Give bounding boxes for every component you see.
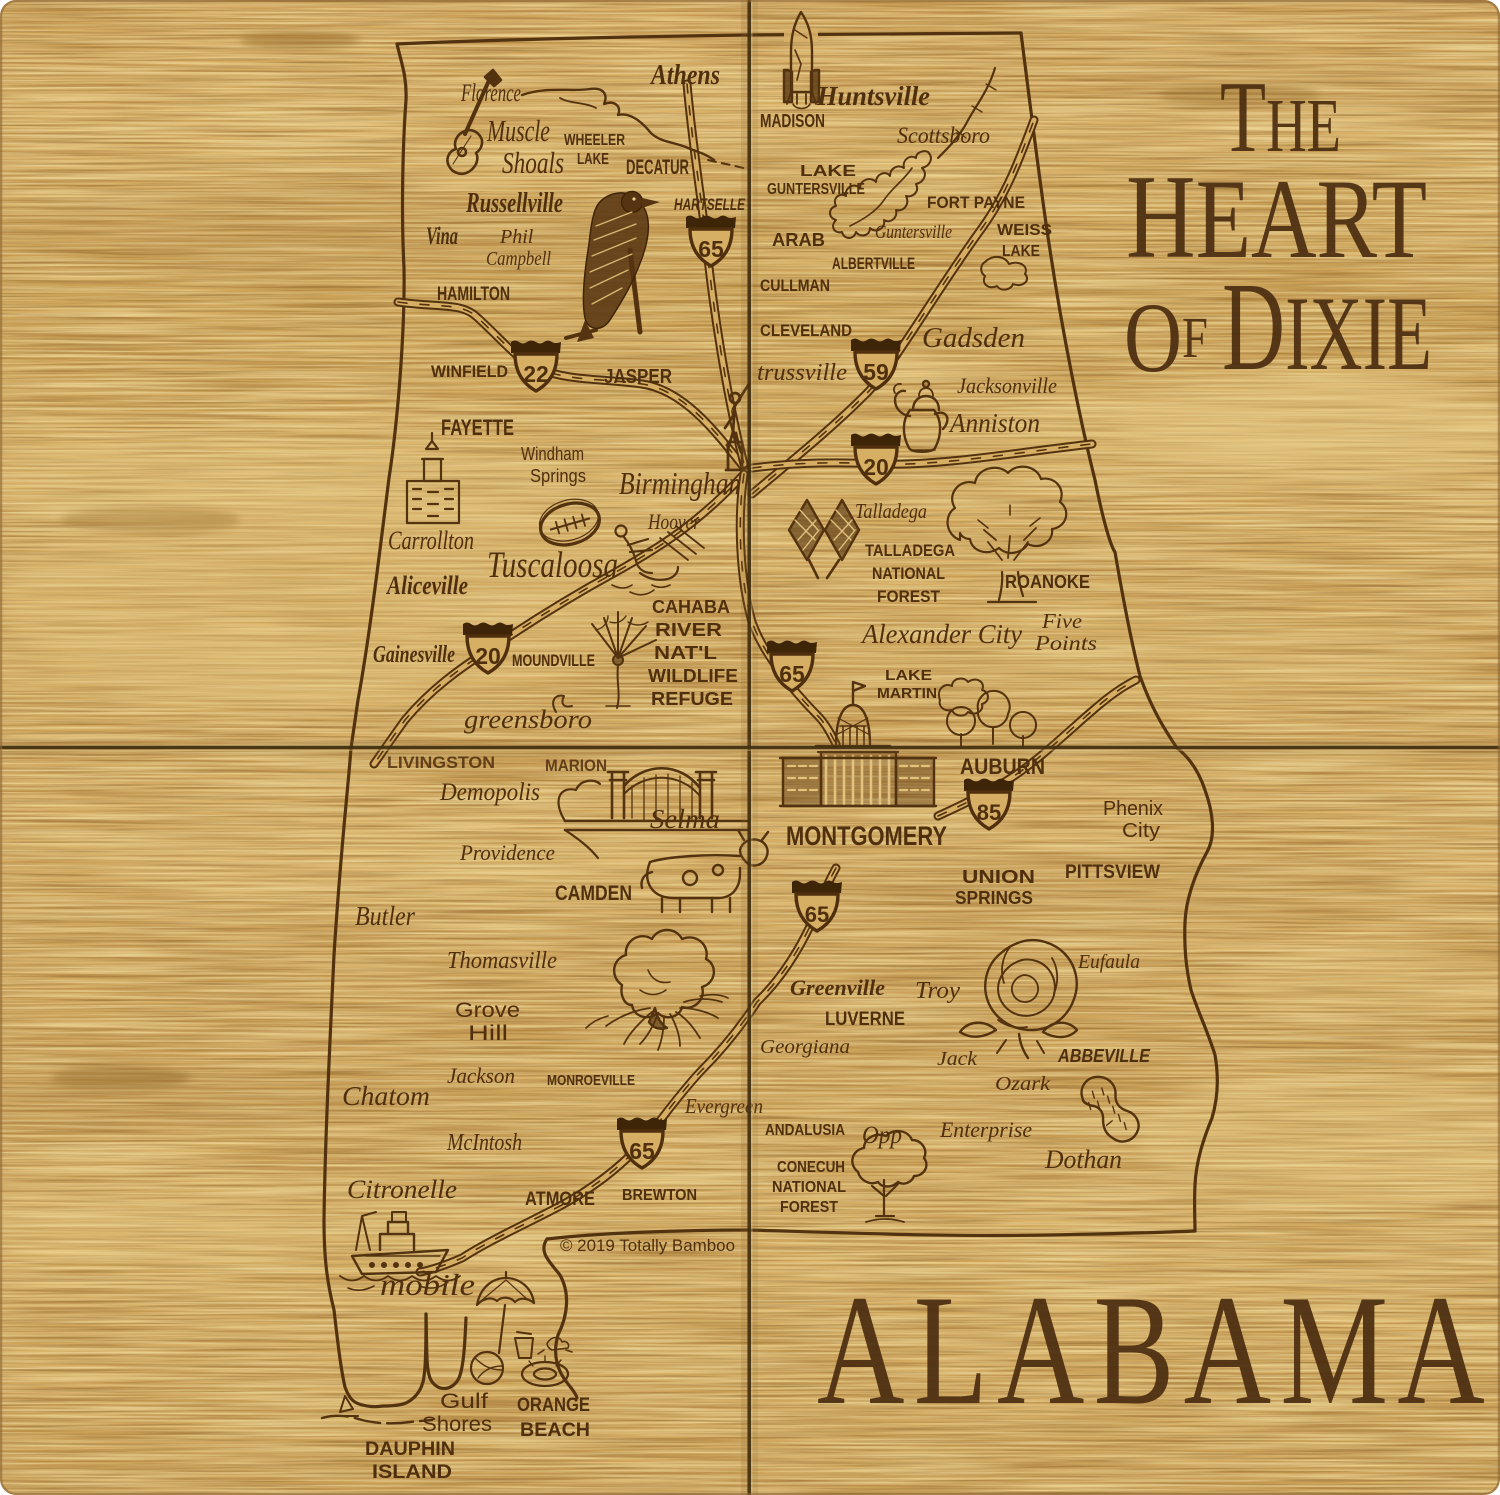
svg-text:mobile: mobile (380, 1267, 475, 1302)
svg-text:ISLAND: ISLAND (372, 1462, 452, 1483)
svg-text:Windham: Windham (521, 444, 584, 464)
svg-text:Guntersville: Guntersville (875, 222, 952, 243)
svg-text:Providence: Providence (459, 840, 555, 865)
svg-text:NATIONAL: NATIONAL (772, 1179, 846, 1196)
svg-text:WHEELER: WHEELER (564, 132, 625, 149)
svg-text:Demopolis: Demopolis (439, 779, 540, 806)
svg-text:Chatom: Chatom (342, 1081, 430, 1111)
svg-text:Anniston: Anniston (948, 408, 1040, 438)
svg-text:NAT'L: NAT'L (654, 643, 717, 663)
svg-text:20: 20 (475, 643, 501, 669)
svg-text:Points: Points (1034, 631, 1097, 655)
svg-text:Opp: Opp (862, 1122, 902, 1149)
svg-text:85: 85 (977, 800, 1001, 825)
svg-text:REFUGE: REFUGE (651, 689, 733, 709)
svg-text:Gadsden: Gadsden (922, 323, 1025, 354)
svg-text:CAHABA: CAHABA (652, 597, 730, 617)
svg-text:Georgiana: Georgiana (760, 1036, 850, 1058)
svg-text:SPRINGS: SPRINGS (955, 888, 1033, 908)
svg-text:Troy: Troy (915, 978, 960, 1004)
svg-text:Five: Five (1041, 609, 1082, 633)
svg-text:Alexander City: Alexander City (860, 619, 1022, 649)
svg-text:Campbell: Campbell (486, 248, 551, 270)
svg-text:CAMDEN: CAMDEN (555, 882, 632, 905)
svg-text:Jackson: Jackson (447, 1063, 515, 1088)
svg-text:Jack: Jack (937, 1048, 978, 1070)
svg-text:Talladega: Talladega (855, 499, 927, 523)
svg-text:FORT PAYNE: FORT PAYNE (927, 193, 1025, 212)
svg-text:Gulf: Gulf (440, 1390, 488, 1413)
svg-text:BEACH: BEACH (520, 1420, 590, 1441)
svg-text:22: 22 (523, 361, 549, 387)
svg-text:Aliceville: Aliceville (385, 571, 468, 600)
svg-text:ROANOKE: ROANOKE (1005, 572, 1090, 592)
svg-text:DIXIE: DIXIE (1222, 258, 1432, 397)
svg-text:65: 65 (779, 661, 805, 687)
svg-text:Jacksonville: Jacksonville (957, 373, 1057, 398)
svg-text:LAKE: LAKE (800, 163, 856, 180)
svg-text:Huntsville: Huntsville (816, 81, 930, 111)
svg-text:ABBEVILLE: ABBEVILLE (1057, 1046, 1151, 1066)
svg-text:ALABAMA: ALABAMA (817, 1263, 1494, 1438)
svg-text:Thomasville: Thomasville (447, 948, 557, 974)
svg-text:NATIONAL: NATIONAL (872, 564, 945, 583)
svg-text:Gainesville: Gainesville (373, 642, 455, 668)
svg-text:20: 20 (863, 454, 889, 480)
svg-text:MOUNDVILLE: MOUNDVILLE (512, 651, 595, 670)
svg-text:Ozark: Ozark (995, 1073, 1051, 1095)
svg-text:Russellville: Russellville (465, 187, 563, 219)
svg-text:Grove: Grove (455, 999, 520, 1022)
svg-text:Dothan: Dothan (1044, 1145, 1122, 1174)
svg-text:MONTGOMERY: MONTGOMERY (786, 821, 947, 851)
svg-text:HARTSELLE: HARTSELLE (674, 195, 745, 214)
svg-text:TALLADEGA: TALLADEGA (865, 541, 955, 560)
svg-text:FOREST: FOREST (780, 1199, 838, 1216)
svg-text:trussville: trussville (757, 360, 847, 386)
svg-text:MADISON: MADISON (760, 111, 825, 131)
svg-text:Springs: Springs (530, 466, 586, 486)
svg-text:RIVER: RIVER (655, 620, 722, 640)
svg-text:65: 65 (698, 236, 724, 262)
svg-text:Phil: Phil (499, 226, 534, 248)
svg-text:Greenville: Greenville (790, 975, 885, 1000)
svg-text:ATMORE: ATMORE (525, 1189, 595, 1210)
svg-text:City: City (1122, 820, 1160, 842)
svg-text:ANDALUSIA: ANDALUSIA (765, 1122, 845, 1139)
svg-text:© 2019 Totally Bamboo: © 2019 Totally Bamboo (560, 1236, 735, 1255)
svg-text:Phenix: Phenix (1103, 798, 1163, 820)
svg-text:WILDLIFE: WILDLIFE (648, 666, 738, 686)
svg-text:CONECUH: CONECUH (777, 1159, 845, 1176)
svg-text:Vina: Vina (426, 223, 458, 250)
svg-text:CLEVELAND: CLEVELAND (760, 321, 852, 340)
svg-text:LAKE: LAKE (577, 151, 609, 168)
svg-text:PITTSVIEW: PITTSVIEW (1065, 862, 1160, 883)
svg-text:MARION: MARION (545, 756, 607, 775)
svg-text:LAKE: LAKE (1002, 243, 1040, 260)
svg-text:LUVERNE: LUVERNE (825, 1009, 905, 1030)
svg-text:Citronelle: Citronelle (347, 1175, 457, 1204)
svg-text:WEISS: WEISS (997, 222, 1052, 239)
svg-text:FOREST: FOREST (877, 587, 941, 606)
svg-text:UNION: UNION (962, 867, 1035, 887)
svg-text:GUNTERSVILLE: GUNTERSVILLE (767, 181, 865, 198)
svg-text:greensboro: greensboro (464, 705, 592, 734)
svg-text:MARTIN: MARTIN (877, 685, 937, 702)
svg-text:59: 59 (863, 359, 889, 385)
svg-text:Athens: Athens (649, 60, 720, 91)
svg-text:Hill: Hill (468, 1022, 508, 1045)
svg-text:Butler: Butler (355, 901, 415, 931)
svg-text:Shoals: Shoals (502, 145, 564, 180)
svg-text:LAKE: LAKE (885, 667, 932, 684)
svg-text:FAYETTE: FAYETTE (441, 415, 514, 440)
svg-text:BREWTON: BREWTON (622, 1187, 697, 1204)
svg-text:Carrollton: Carrollton (388, 526, 474, 555)
svg-text:ARAB: ARAB (772, 230, 825, 250)
svg-text:Shores: Shores (422, 1413, 492, 1436)
svg-text:65: 65 (805, 902, 829, 927)
svg-text:AUBURN: AUBURN (960, 754, 1045, 779)
svg-text:65: 65 (629, 1138, 655, 1164)
svg-text:Enterprise: Enterprise (939, 1117, 1032, 1142)
svg-text:Muscle: Muscle (486, 113, 550, 148)
svg-text:JASPER: JASPER (604, 366, 672, 388)
svg-text:HAMILTON: HAMILTON (437, 284, 510, 305)
svg-text:Selma: Selma (650, 804, 720, 834)
svg-text:WINFIELD: WINFIELD (431, 362, 508, 381)
svg-text:McIntosh: McIntosh (446, 1130, 522, 1156)
svg-text:Hoover: Hoover (647, 509, 700, 534)
svg-text:ALBERTVILLE: ALBERTVILLE (832, 254, 915, 273)
svg-text:Birmingham: Birmingham (619, 465, 747, 501)
svg-text:DAUPHIN: DAUPHIN (365, 1439, 455, 1460)
svg-text:Eufaula: Eufaula (1077, 951, 1140, 973)
svg-text:Scottsboro: Scottsboro (897, 123, 990, 148)
svg-text:CULLMAN: CULLMAN (760, 276, 830, 295)
svg-text:MONROEVILLE: MONROEVILLE (547, 1072, 635, 1089)
svg-text:Florence: Florence (460, 80, 521, 107)
svg-text:DECATUR: DECATUR (626, 156, 689, 179)
svg-text:ORANGE: ORANGE (517, 1395, 590, 1416)
svg-text:Tuscaloosa: Tuscaloosa (487, 545, 618, 586)
